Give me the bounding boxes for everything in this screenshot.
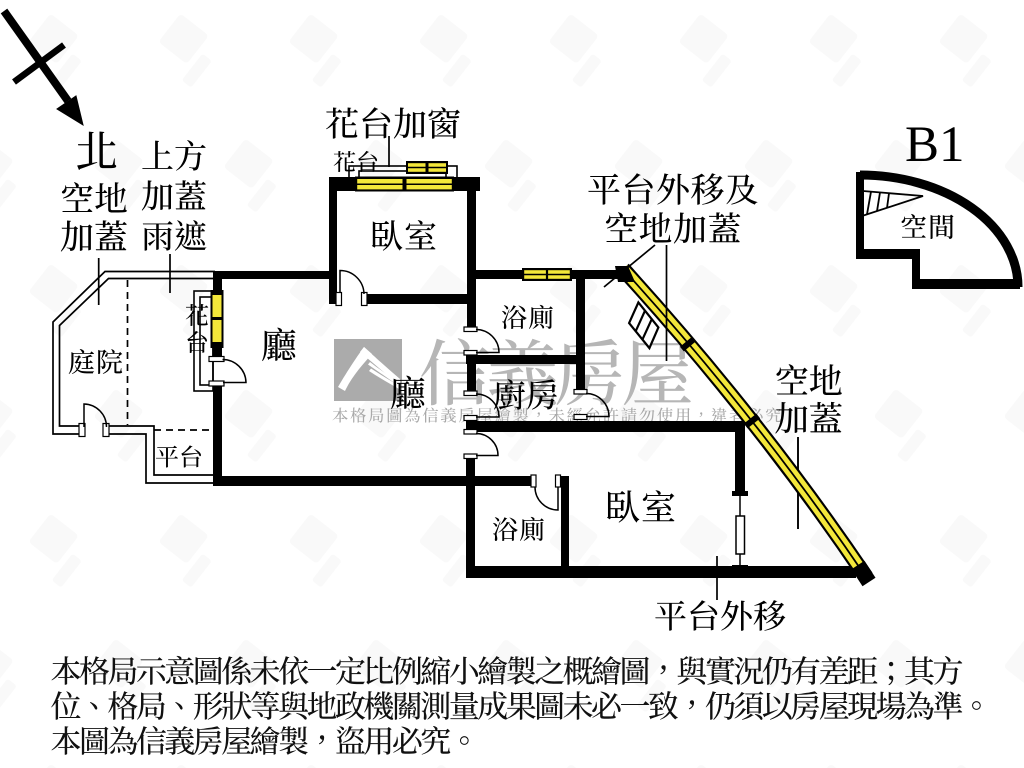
svg-text:B1: B1 [905,117,965,173]
